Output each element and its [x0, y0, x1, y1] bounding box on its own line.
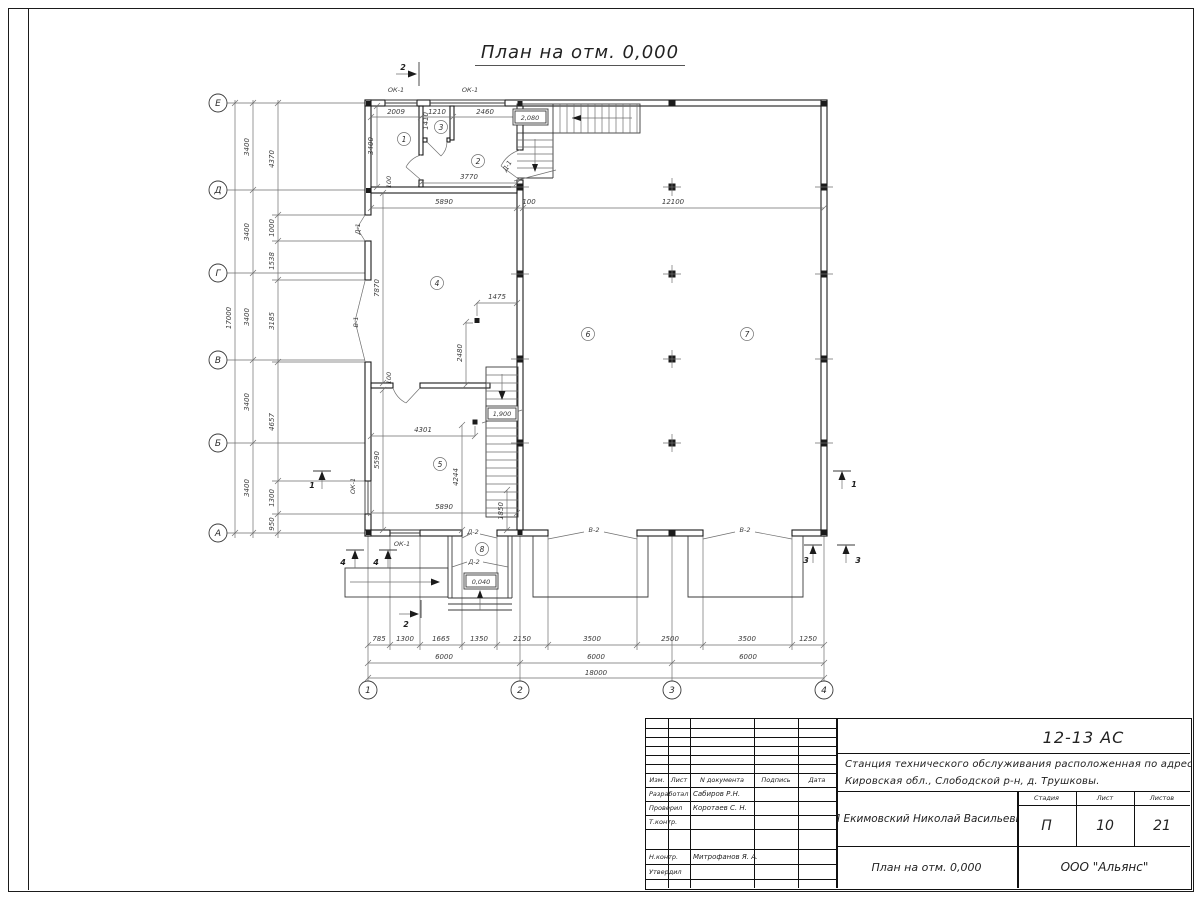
dim-label: 6000: [435, 653, 453, 661]
stamp-line: [646, 764, 836, 765]
dim-label: 12100: [662, 198, 685, 206]
dim-label: 1475: [488, 293, 506, 301]
dim-label: 3500: [583, 635, 601, 643]
room-number: 4: [435, 279, 440, 288]
door-label: Д-2: [467, 558, 480, 566]
stamp-name-developed: Сабиров Р.Н.: [690, 787, 757, 801]
floor-drains: [473, 318, 480, 425]
dim-label: 2150: [513, 635, 531, 643]
dim-label: 5890: [435, 198, 453, 206]
room-number: 2: [476, 157, 481, 166]
dim-label: 5590: [373, 451, 381, 469]
dim-label: 4370: [268, 150, 276, 168]
left-dimension-chains: 17000 3400 3400 3400 3400 3400 4370 1000…: [225, 100, 365, 538]
dim-label: 100: [385, 372, 393, 384]
dim-label: 1000: [268, 219, 276, 237]
axis-circles-bottom: 1 2 3 4: [359, 681, 833, 699]
dim-label: 1665: [432, 635, 450, 643]
axis-label: Г: [215, 269, 221, 279]
stamp-doc-code: 12-13 АС: [986, 723, 1181, 751]
dim-label: 3400: [367, 137, 375, 155]
axis-label: 3: [669, 686, 675, 696]
room-number: 5: [438, 460, 443, 469]
axis-label: В: [215, 356, 221, 366]
stamp-sheets-total: 21: [1134, 805, 1190, 846]
stamp-company: ООО "Альянс": [1019, 846, 1190, 888]
dim-label: 1250: [799, 635, 817, 643]
dim-label: 4657: [268, 413, 276, 431]
stamp-col-data: Дата: [798, 773, 836, 787]
stamp-line: [836, 753, 1190, 754]
dim-label: 100: [522, 198, 536, 206]
elevation-value: 2,080: [521, 114, 540, 122]
dim-label: 1300: [268, 489, 276, 507]
axis-label: Б: [215, 439, 221, 449]
stamp-client: ИП Екимовский Николай Васильевич: [836, 791, 1017, 846]
section-label: 1: [309, 481, 315, 490]
elevation-value: 0,040: [472, 578, 491, 586]
stamp-role-tcontrol: Т.контр.: [646, 815, 693, 829]
dim-label: 5890: [435, 503, 453, 511]
section-label: 3: [855, 556, 861, 565]
stamp-sheets-label: Листов: [1134, 791, 1190, 805]
section-label: 4: [339, 558, 346, 567]
stamp-col-izm: Изм.: [646, 773, 668, 787]
stamp-role-ncontrol: Н.контр.: [646, 849, 693, 864]
stamp-role-approved: Утвердил: [646, 864, 693, 879]
entry-porch: [345, 536, 803, 610]
section-label: 1: [851, 480, 857, 489]
stamp-object-line1: Станция технического обслуживания распол…: [842, 755, 1191, 773]
gate-label: В-2: [740, 526, 751, 534]
window-label: ОК-1: [462, 86, 478, 94]
dim-label: 4301: [414, 426, 432, 434]
section-label: 4: [372, 558, 379, 567]
dim-label: 2009: [387, 108, 405, 116]
stamp-object-line2: Кировская обл., Слободской р-н, д. Трушк…: [842, 772, 1191, 790]
bottom-dimension-chains: 785 1300 1665 1350 2150 3500 2500 3500 1…: [365, 536, 827, 681]
dim-label: 7870: [373, 279, 381, 297]
room-number: 8: [480, 545, 485, 554]
dim-label: 3400: [243, 479, 251, 497]
section-label: 2: [400, 63, 406, 72]
stamp-line: [646, 737, 836, 738]
dim-label: 3500: [738, 635, 756, 643]
section-label: 3: [803, 556, 809, 565]
stamp-stage-value: П: [1017, 805, 1076, 846]
stamp-line: [646, 879, 836, 880]
gate-label: В-2: [589, 526, 600, 534]
windows: [365, 100, 505, 536]
stamp-line: [646, 746, 836, 747]
dim-label: 1210: [428, 108, 446, 116]
stamp-line: [646, 728, 836, 729]
axis-label: 1: [365, 686, 371, 696]
exterior-walls: [365, 100, 827, 536]
section-marks: 2 2 1 1 4 4 3 3: [309, 62, 861, 629]
stamp-col-list: Лист: [668, 773, 690, 787]
room-number: 1: [402, 135, 407, 144]
drawing-sheet: План на отм. 0,000 Е Д Г В Б А 1 2 3 4: [0, 0, 1200, 900]
staircase-middle: [482, 367, 522, 517]
dim-label: 3400: [243, 308, 251, 326]
axis-label: 4: [821, 686, 827, 696]
stamp-line: [798, 719, 799, 888]
dim-label: 785: [372, 635, 386, 643]
dim-label: 1350: [470, 635, 488, 643]
window-label: ОК-1: [388, 86, 404, 94]
stamp-col-ndoc: N документа: [690, 773, 754, 787]
dim-label: 3770: [460, 173, 478, 181]
elevation-value: 1,900: [493, 410, 512, 418]
stamp-name-checked: Коротаев С. Н.: [690, 801, 757, 815]
dim-label: 1538: [268, 252, 276, 270]
columns: [366, 100, 833, 537]
interior-dimensions: 2009 1410 1210 2460 5890 100 12100 3400 …: [367, 103, 827, 533]
window-label: ОК-1: [394, 540, 410, 548]
section-label: 2: [403, 620, 409, 629]
dim-label: 3400: [243, 393, 251, 411]
stamp-sheet-number: 10: [1076, 805, 1134, 846]
dim-label: 18000: [585, 669, 608, 677]
stamp-line: [646, 755, 836, 756]
title-block: Изм. Лист N документа Подпись Дата Разра…: [645, 718, 1192, 890]
dim-label: 4244: [452, 468, 460, 486]
stamp-line: [646, 829, 836, 830]
room-numbers: 1 2 3 4 5 6 7 8: [398, 121, 754, 556]
dim-label: 100: [385, 176, 393, 188]
door-swings: [355, 142, 520, 403]
dim-label: 950: [268, 517, 276, 531]
axis-label: 2: [517, 686, 523, 696]
stamp-stage-label: Стадия: [1017, 791, 1076, 805]
grid-axis-lines: [227, 103, 824, 681]
gate-label: В-1: [352, 317, 360, 328]
dim-label: 3185: [268, 312, 276, 330]
door-label: Д-1: [354, 223, 362, 236]
axis-label: Е: [215, 99, 221, 109]
dim-label: 2480: [456, 344, 464, 362]
dim-label: 17000: [225, 306, 233, 329]
room-number: 7: [745, 330, 750, 339]
window-label: ОК-1: [349, 478, 357, 494]
stamp-sheet-label: Лист: [1076, 791, 1134, 805]
stamp-name-ncontrol: Митрофанов Я. А.: [690, 849, 757, 864]
dim-label: 1300: [396, 635, 414, 643]
stamp-role-developed: Разработал: [646, 787, 693, 801]
dim-label: 6000: [587, 653, 605, 661]
axis-label: Д: [213, 186, 221, 196]
room-number: 6: [586, 330, 591, 339]
axis-label: А: [214, 529, 221, 539]
dim-label: 2460: [476, 108, 494, 116]
dim-label: 1850: [497, 502, 505, 520]
stamp-drawing-title: План на отм. 0,000: [836, 846, 1017, 888]
room-number: 3: [439, 123, 444, 132]
dim-label: 2500: [661, 635, 679, 643]
door-label: Д-1: [500, 159, 513, 174]
stamp-role-checked: Проверил: [646, 801, 693, 815]
dim-label: 6000: [739, 653, 757, 661]
stamp-col-podpis: Подпись: [754, 773, 798, 787]
dim-label: 3400: [243, 138, 251, 156]
opening-labels: ОК-1 ОК-1 ОК-1 ОК-1 Д-1 В-1 Д-1 Д-2 Д-2 …: [349, 86, 792, 567]
dim-label: 3400: [243, 223, 251, 241]
